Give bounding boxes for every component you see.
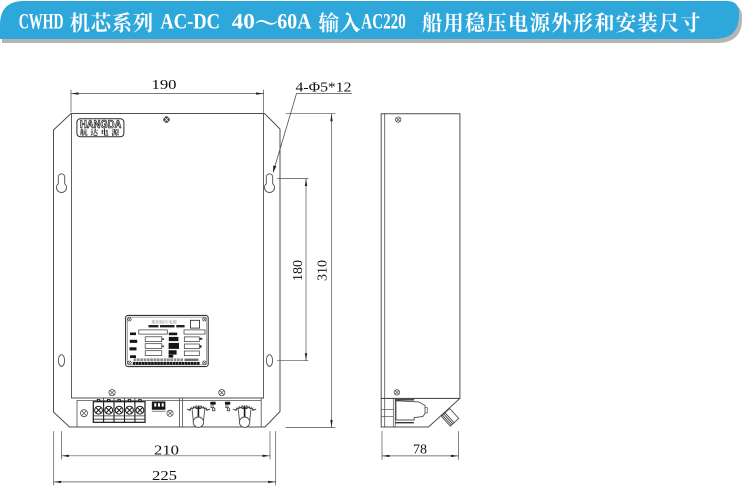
svg-text:310: 310 [316, 260, 331, 281]
svg-text:210: 210 [154, 444, 179, 459]
svg-text:60A: 60A [277, 8, 311, 33]
svg-text:40: 40 [232, 8, 255, 33]
svg-text:190: 190 [152, 78, 177, 93]
svg-text:AC-DC: AC-DC [160, 8, 220, 33]
svg-text:225: 225 [152, 469, 177, 484]
svg-text:AC220: AC220 [361, 8, 406, 33]
svg-text:4-Φ5*12: 4-Φ5*12 [296, 80, 352, 95]
svg-text:CWHD: CWHD [19, 8, 64, 33]
svg-text:180: 180 [291, 260, 306, 281]
svg-text:78: 78 [413, 443, 427, 458]
